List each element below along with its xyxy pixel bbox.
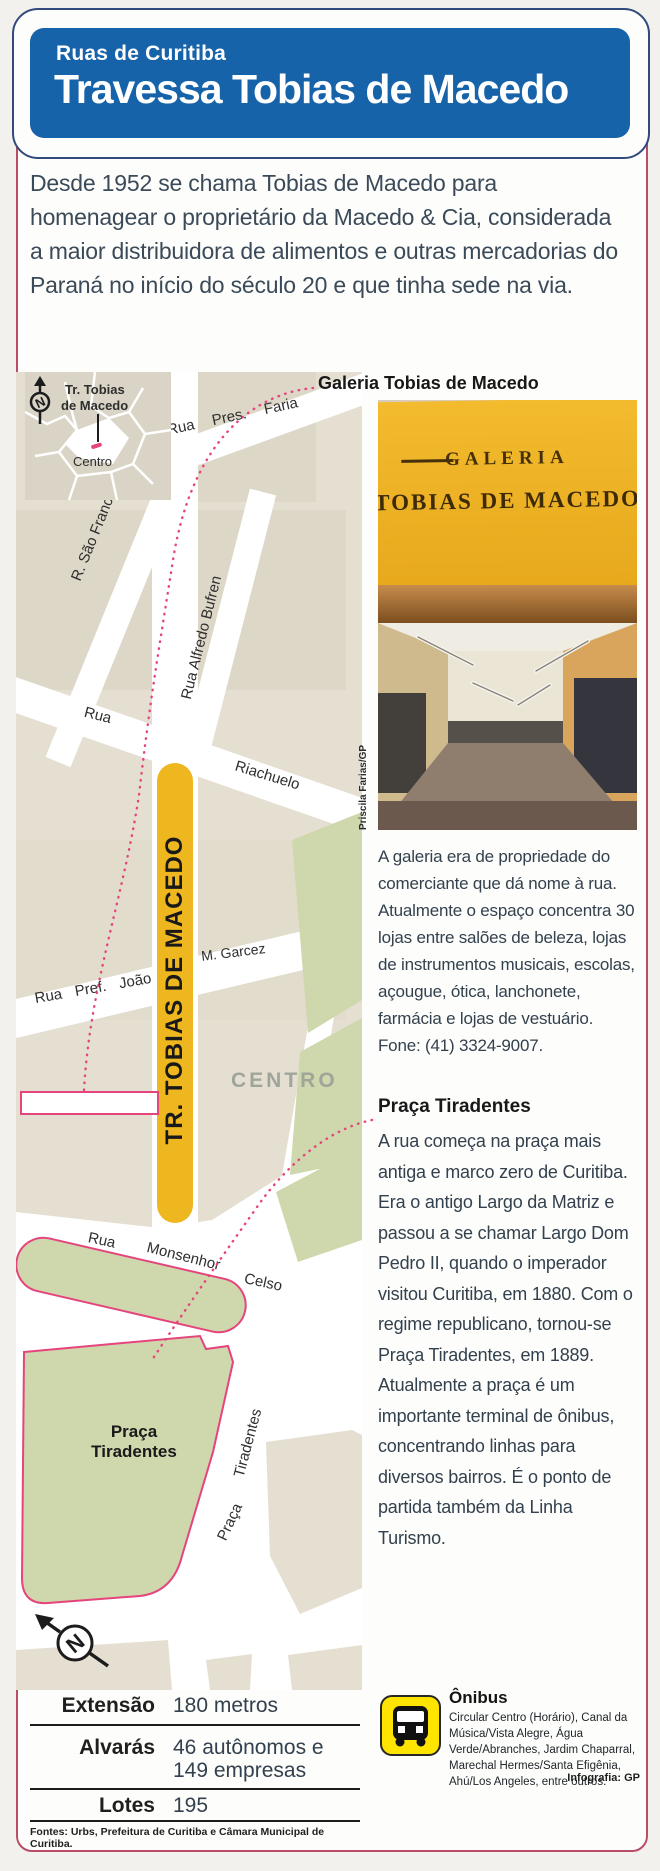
street-label-tr-tobias-de-macedo: TR. TOBIAS DE MACEDO [161,836,189,1145]
map-graphics [16,372,362,1690]
pink-rectangle-marker [21,1092,158,1114]
inset-street-label-line1: Tr. Tobias [65,382,125,397]
stat-label-lotes: Lotes [30,1794,155,1818]
sign-text-tobias: TOBIAS DE MACEDO [378,486,637,517]
galeria-sign: GALERIA TOBIAS DE MACEDO [378,400,637,592]
stat-value-extensao: 180 metros [173,1694,345,1717]
stats-divider-2 [30,1788,360,1790]
sources-note: Fontes: Urbs, Prefeitura de Curitiba e C… [30,1826,360,1850]
bus-icon [382,1697,439,1754]
photo-corridor [378,623,637,830]
photo-credit: Priscila Farias/GP [358,745,369,830]
sign-text-galeria: GALERIA [378,446,637,473]
header-banner: Ruas de Curitiba Travessa Tobias de Mace… [30,28,630,138]
bus-badge [380,1695,441,1756]
inset-street-label-line2: de Macedo [61,398,128,413]
praca-tiradentes-heading: Praça Tiradentes [378,1096,640,1118]
infographic-page: Rua Pres. Faria R. São Francisco Rua Alf… [0,0,660,1871]
galeria-heading: Galeria Tobias de Macedo [318,373,638,394]
district-label-centro: CENTRO [231,1069,338,1093]
page-title: Travessa Tobias de Macedo [54,66,568,113]
onibus-heading: Ônibus [449,1688,508,1708]
compass-icon: N [30,1608,122,1680]
locator-inset-map: N Tr. Tobias de Macedo Centro [25,372,171,500]
stat-value-alvaras: 46 autônomos e 149 empresas [173,1736,345,1782]
stat-label-extensao: Extensão [30,1694,155,1718]
intro-paragraph: Desde 1952 se chama Tobias de Macedo par… [30,166,622,302]
stats-divider-3 [30,1820,360,1822]
stats-divider-1 [30,1724,360,1726]
street-map: Rua Pres. Faria R. São Francisco Rua Alf… [16,372,362,1690]
header-kicker: Ruas de Curitiba [56,42,226,66]
infographic-credit: Infografia: GP [460,1772,640,1784]
stat-value-lotes: 195 [173,1794,345,1817]
inset-district-label: Centro [73,454,112,469]
header-capsule: Ruas de Curitiba Travessa Tobias de Mace… [12,8,650,159]
praca-tiradentes-paragraph: A rua começa na praça mais antiga e marc… [378,1126,644,1553]
galeria-photo: GALERIA TOBIAS DE MACEDO [378,400,637,830]
inset-north-arrow-icon: N [29,376,51,428]
stat-label-alvaras: Alvarás [30,1736,155,1760]
galeria-paragraph: A galeria era de propriedade do comercia… [378,843,640,1059]
photo-beam [378,585,637,623]
praca-tiradentes-label: Praça Tiradentes [74,1422,194,1462]
